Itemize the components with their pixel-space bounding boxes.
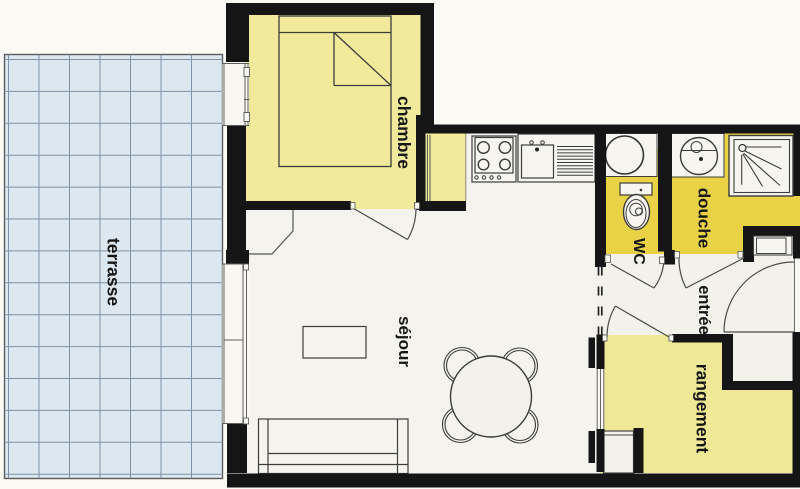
- svg-text:terrasse: terrasse: [104, 238, 124, 306]
- svg-text:douche: douche: [695, 188, 714, 248]
- svg-text:WC: WC: [630, 238, 647, 265]
- svg-text:entrée: entrée: [695, 285, 713, 335]
- svg-text:rangement: rangement: [693, 364, 713, 454]
- svg-text:chambre: chambre: [394, 96, 414, 169]
- svg-text:séjour: séjour: [395, 316, 414, 367]
